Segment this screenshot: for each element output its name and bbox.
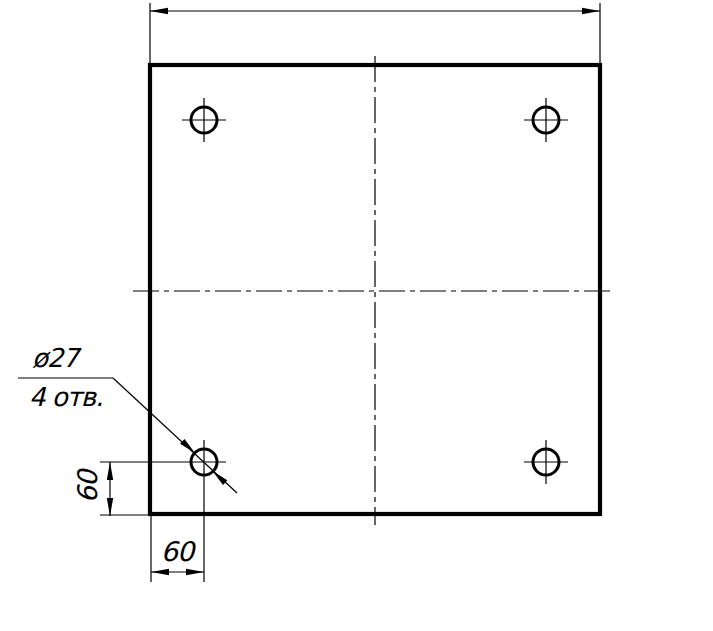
- arrowhead-hole-diameter-upper: [180, 439, 195, 453]
- arrowhead-offset-vertical-down: [107, 498, 113, 516]
- hole-top-left-centermark: [182, 98, 226, 142]
- hole-bottom-right-centermark: [524, 440, 568, 484]
- dimension-hole-offset-vertical: [100, 462, 150, 516]
- dimension-value-horizontal: 60: [161, 536, 197, 567]
- arrowhead-overall-left: [150, 8, 168, 14]
- hole-top-right-centermark: [524, 98, 568, 142]
- dimension-overall-width: [150, 3, 600, 64]
- arrowhead-hole-diameter-lower: [213, 471, 228, 485]
- dimension-value-vertical: 60: [72, 467, 103, 503]
- plate-drawing: ø27 4 отв. 60 60: [0, 0, 713, 631]
- linework: [18, 3, 613, 582]
- hole-count-label: 4 отв.: [29, 382, 102, 412]
- drawing-sheet: ø27 4 отв. 60 60: [0, 0, 713, 631]
- arrowhead-overall-right: [582, 8, 600, 14]
- hole-diameter-label: ø27: [32, 343, 82, 373]
- arrowhead-offset-horizontal-left: [151, 569, 169, 575]
- arrowhead-offset-horizontal-right: [186, 569, 204, 575]
- arrowhead-offset-vertical-up: [107, 462, 113, 480]
